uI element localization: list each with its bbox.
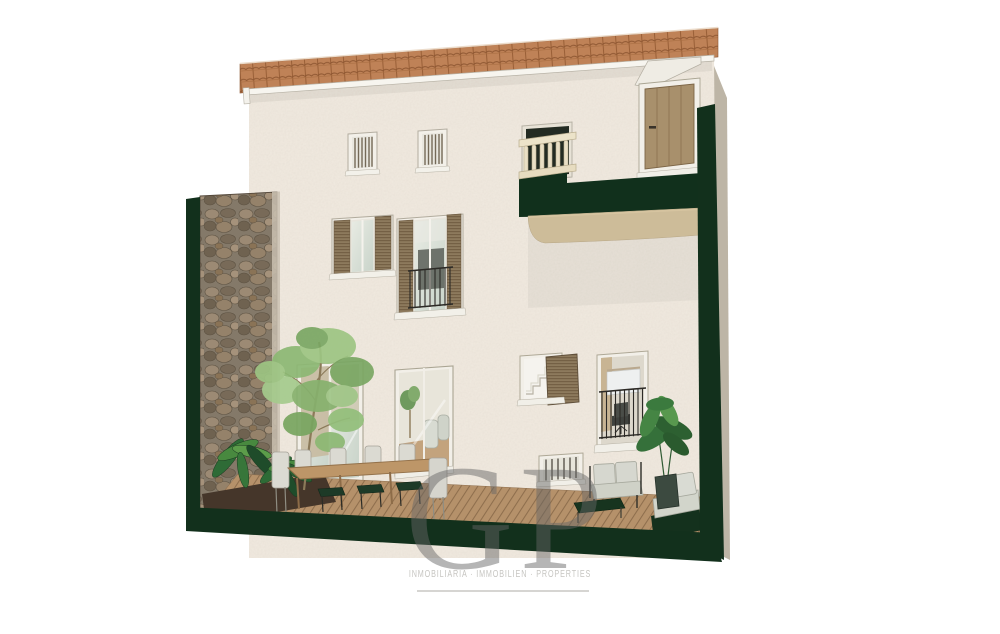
watermark-tagline: INMOBILIARIA · IMMOBILIEN · PROPERTIES xyxy=(409,569,591,580)
shutter-right xyxy=(447,214,461,309)
downspout xyxy=(243,88,250,104)
door-handle xyxy=(649,126,656,129)
watermark-rule xyxy=(417,590,589,592)
window-stairwell xyxy=(517,353,579,406)
shutter-left xyxy=(399,220,413,315)
window-barred-top-right xyxy=(415,129,450,173)
french-door-shuttered xyxy=(394,214,466,320)
cut-wall-left xyxy=(186,197,200,511)
shutter-right xyxy=(375,216,391,270)
property-render-page: GP INMOBILIARIA · IMMOBILIEN · PROPERTIE… xyxy=(0,0,1000,634)
shutter-left xyxy=(334,220,350,274)
dining-chair-left xyxy=(272,452,289,488)
window-barred-top-left xyxy=(345,132,380,176)
plant-pot xyxy=(655,474,679,509)
window-shuttered xyxy=(329,215,396,280)
